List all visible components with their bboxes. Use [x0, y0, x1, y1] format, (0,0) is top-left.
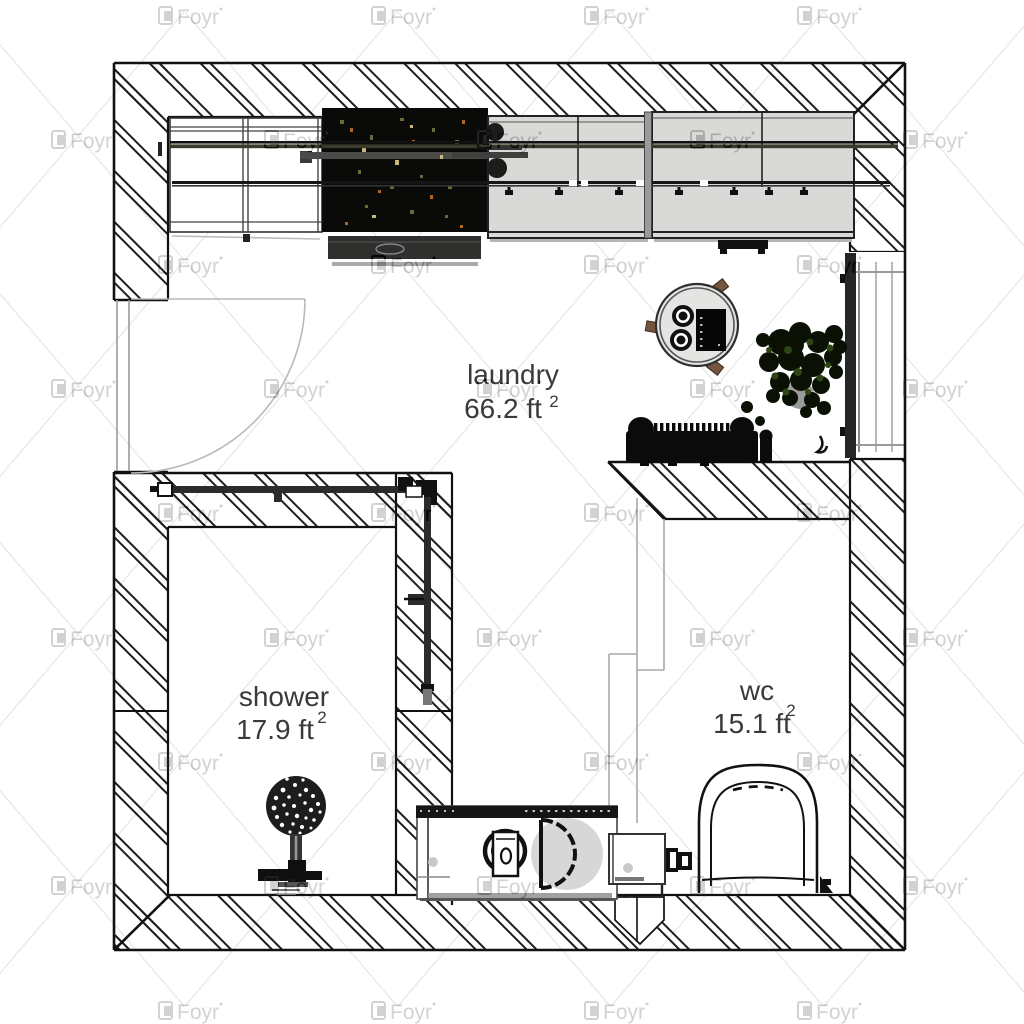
svg-text:Foyr: Foyr — [70, 379, 112, 402]
svg-text:Foyr: Foyr — [70, 876, 112, 899]
svg-text:Foyr: Foyr — [922, 130, 964, 153]
svg-text:Foyr: Foyr — [177, 255, 219, 278]
svg-text:Foyr: Foyr — [816, 1001, 858, 1024]
svg-text:Foyr: Foyr — [70, 628, 112, 651]
svg-text:Foyr: Foyr — [390, 503, 432, 526]
svg-text:2: 2 — [317, 708, 326, 727]
svg-text:Foyr: Foyr — [603, 1001, 645, 1024]
svg-text:Foyr: Foyr — [603, 503, 645, 526]
svg-text:Foyr: Foyr — [283, 876, 325, 899]
svg-text:Foyr: Foyr — [496, 628, 538, 651]
svg-text:2: 2 — [549, 392, 558, 411]
svg-text:Foyr: Foyr — [496, 130, 538, 153]
svg-text:Foyr: Foyr — [709, 628, 751, 651]
svg-text:Foyr: Foyr — [922, 628, 964, 651]
svg-text:Foyr: Foyr — [390, 752, 432, 775]
svg-text:Foyr: Foyr — [496, 876, 538, 899]
svg-text:Foyr: Foyr — [709, 130, 751, 153]
svg-text:Foyr: Foyr — [177, 6, 219, 29]
svg-text:Foyr: Foyr — [922, 379, 964, 402]
svg-text:Foyr: Foyr — [70, 130, 112, 153]
svg-text:shower: shower — [239, 681, 329, 712]
svg-text:Foyr: Foyr — [496, 379, 538, 402]
svg-text:Foyr: Foyr — [709, 379, 751, 402]
svg-text:Foyr: Foyr — [816, 752, 858, 775]
svg-text:Foyr: Foyr — [709, 876, 751, 899]
svg-text:Foyr: Foyr — [816, 255, 858, 278]
svg-text:Foyr: Foyr — [603, 255, 645, 278]
svg-text:Foyr: Foyr — [390, 255, 432, 278]
svg-text:Foyr: Foyr — [283, 379, 325, 402]
svg-text:Foyr: Foyr — [603, 6, 645, 29]
svg-text:Foyr: Foyr — [390, 1001, 432, 1024]
svg-text:15.1 ft: 15.1 ft — [713, 708, 791, 739]
svg-text:Foyr: Foyr — [603, 752, 645, 775]
svg-text:Foyr: Foyr — [816, 6, 858, 29]
svg-text:Foyr: Foyr — [922, 876, 964, 899]
svg-text:wc: wc — [739, 675, 774, 706]
svg-text:Foyr: Foyr — [177, 1001, 219, 1024]
svg-text:17.9 ft: 17.9 ft — [236, 714, 314, 745]
svg-text:Foyr: Foyr — [177, 752, 219, 775]
svg-text:Foyr: Foyr — [390, 6, 432, 29]
svg-text:2: 2 — [786, 701, 795, 720]
svg-text:Foyr: Foyr — [816, 503, 858, 526]
svg-text:Foyr: Foyr — [177, 503, 219, 526]
svg-text:Foyr: Foyr — [283, 628, 325, 651]
svg-text:Foyr: Foyr — [283, 130, 325, 153]
